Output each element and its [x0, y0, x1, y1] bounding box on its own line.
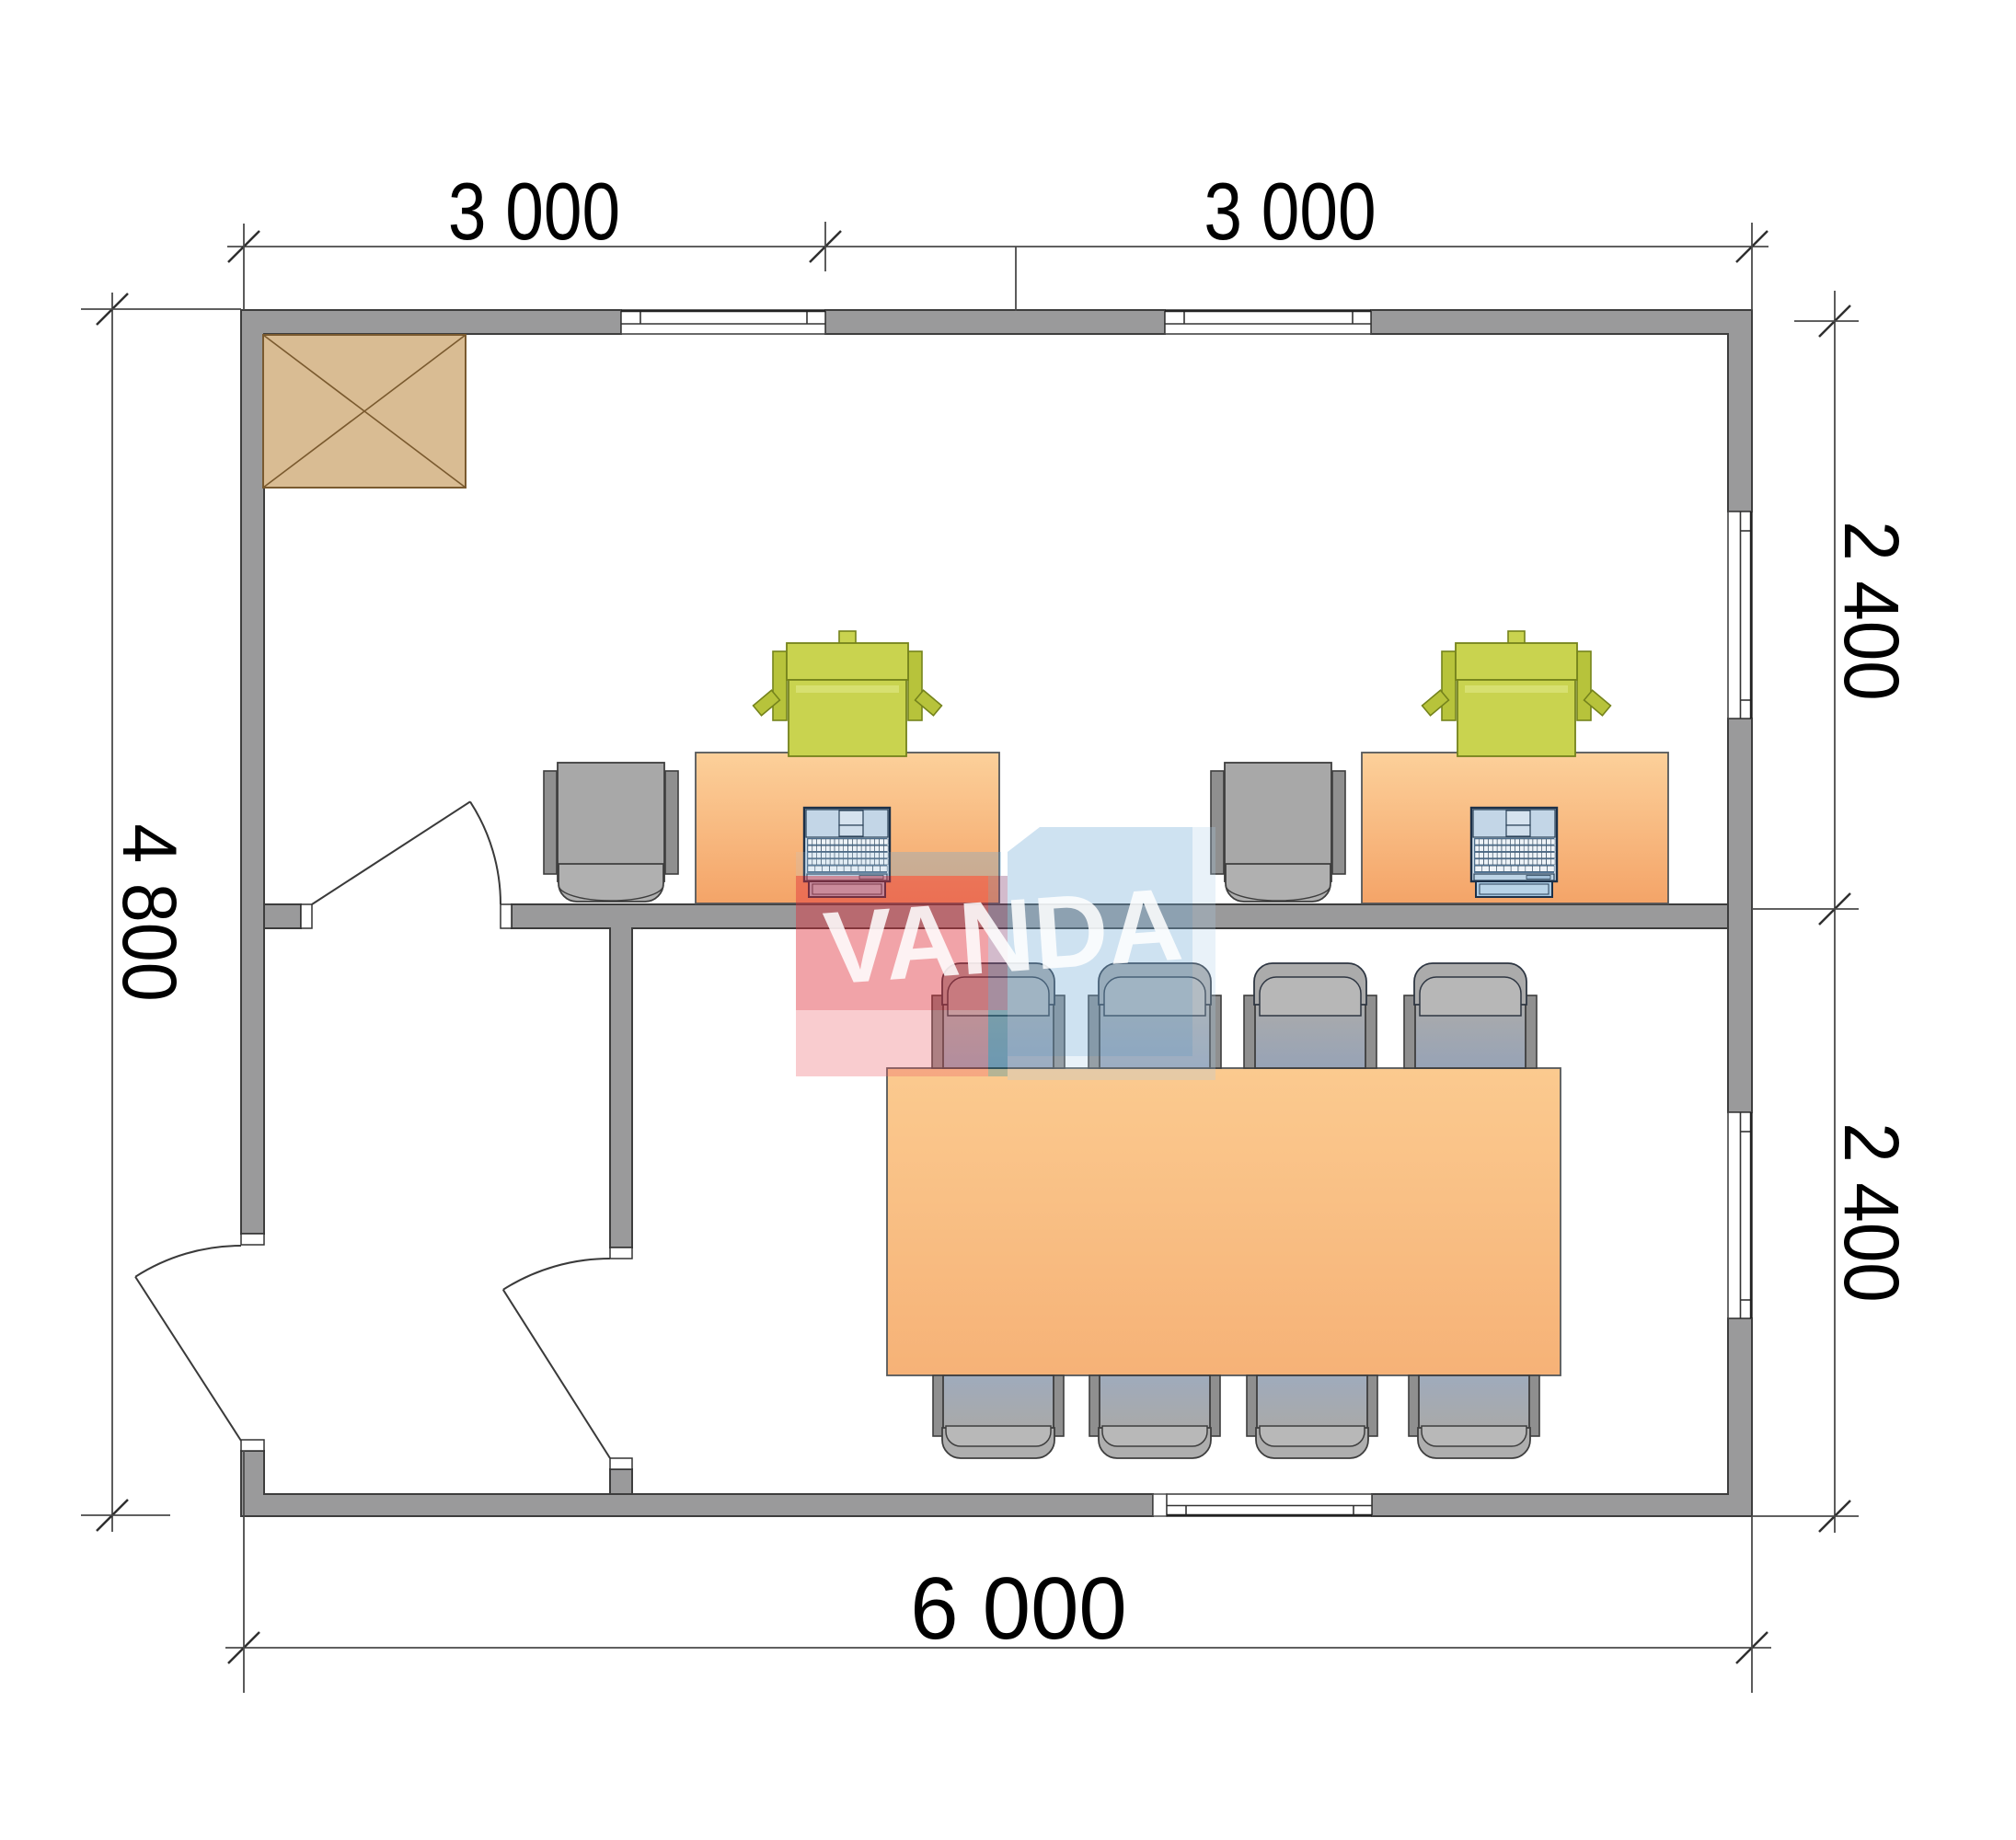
svg-text:6 000: 6 000 [910, 1559, 1126, 1658]
svg-text:3 000: 3 000 [448, 167, 620, 257]
svg-text:3 000: 3 000 [1204, 167, 1376, 257]
svg-text:2 400: 2 400 [1827, 1122, 1913, 1302]
svg-text:4 800: 4 800 [106, 823, 192, 1001]
svg-text:2 400: 2 400 [1827, 521, 1913, 700]
